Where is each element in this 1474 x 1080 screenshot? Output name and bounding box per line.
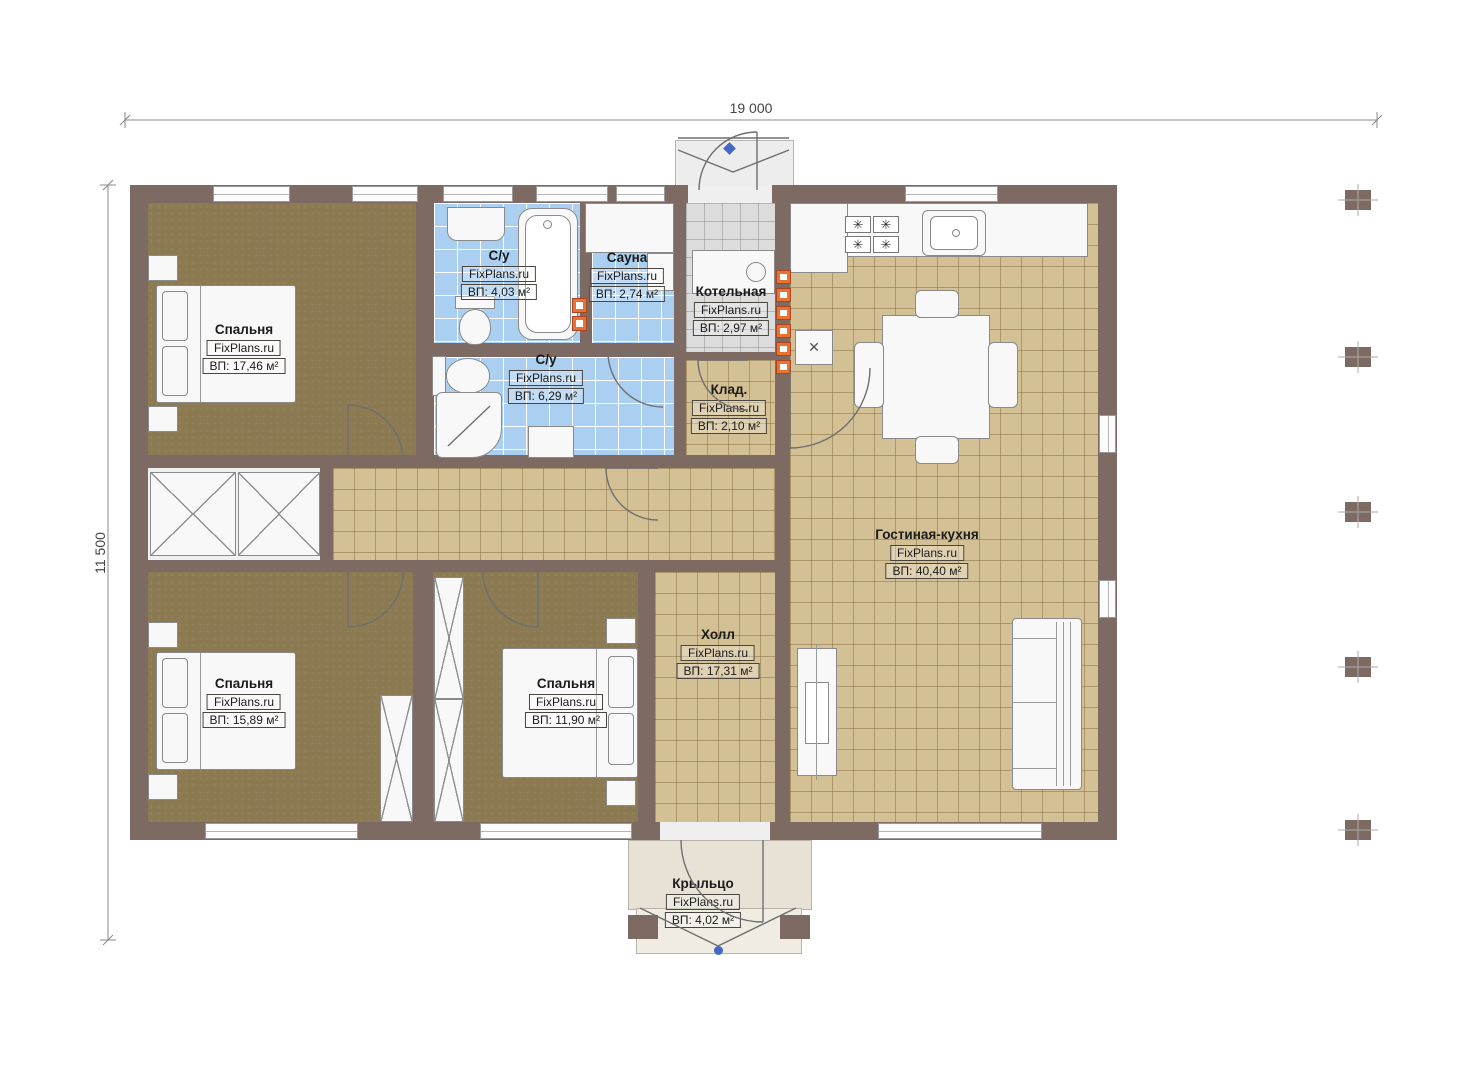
sofa-back-line	[1063, 622, 1064, 786]
appliance-icon: ✕	[795, 330, 833, 365]
nightstand-icon	[148, 774, 178, 800]
room-name: Спальня	[215, 322, 273, 337]
room-area: ВП: 4,03 м²	[461, 284, 537, 300]
nightstand-icon	[148, 406, 178, 432]
shower-icon	[436, 392, 502, 458]
closet-strip-icon	[434, 699, 464, 822]
room-area: ВП: 40,40 м²	[886, 563, 969, 579]
stove-icon: ✳ ✳ ✳ ✳	[845, 216, 901, 254]
sauna-heater-icon	[572, 298, 587, 313]
nightstand-icon	[148, 622, 178, 648]
wall	[665, 343, 674, 357]
porch-pillar	[780, 915, 810, 939]
burner-icon: ✳	[845, 236, 871, 253]
room-name: С/у	[535, 352, 556, 367]
entry-door-opening	[688, 185, 772, 203]
drain-icon	[543, 220, 552, 229]
room-label-porch: Крыльцо FixPlans.ru ВП: 4,02 м²	[665, 876, 741, 928]
window	[1099, 580, 1116, 618]
blanket-line	[200, 653, 201, 769]
room-brand: FixPlans.ru	[509, 370, 583, 386]
sauna-heater-icon	[572, 316, 587, 331]
room-label-storage: Клад. FixPlans.ru ВП: 2,10 м²	[691, 382, 767, 434]
room-name: С/у	[488, 248, 509, 263]
toilet-tank-icon	[432, 356, 446, 396]
chair-icon	[988, 342, 1018, 408]
faucet-icon	[952, 229, 960, 237]
dimension-left-label: 11 500	[92, 513, 108, 593]
room-area: ВП: 2,74 м²	[589, 286, 665, 302]
floor-corridor	[333, 468, 775, 560]
wall	[775, 447, 790, 822]
collector-icon	[776, 306, 791, 320]
pillow-icon	[162, 291, 188, 341]
toilet-icon	[446, 358, 490, 394]
room-brand: FixPlans.ru	[666, 894, 740, 910]
room-name: Спальня	[215, 676, 273, 691]
pillow-icon	[608, 713, 634, 765]
room-area: ВП: 2,97 м²	[693, 320, 769, 336]
room-name: Гостиная-кухня	[875, 527, 978, 542]
sink-icon	[447, 207, 505, 241]
nightstand-icon	[148, 255, 178, 281]
room-area: ВП: 2,10 м²	[691, 418, 767, 434]
boiler-icon	[746, 262, 766, 282]
window	[536, 186, 608, 202]
room-name: Крыльцо	[672, 876, 733, 891]
room-brand: FixPlans.ru	[694, 302, 768, 318]
wall	[538, 560, 790, 572]
terrace-post	[1345, 820, 1371, 840]
porch-marker	[714, 946, 723, 955]
room-brand: FixPlans.ru	[529, 694, 603, 710]
window	[205, 823, 358, 839]
room-brand: FixPlans.ru	[207, 340, 281, 356]
wall	[405, 560, 483, 572]
room-name: Котельная	[696, 284, 767, 299]
room-area: ВП: 4,02 м²	[665, 912, 741, 928]
collector-icon	[776, 288, 791, 302]
room-label-living-kitchen: Гостиная-кухня FixPlans.ru ВП: 40,40 м²	[875, 527, 978, 579]
chair-icon	[915, 290, 959, 318]
window	[213, 186, 290, 202]
wall	[658, 455, 775, 468]
wall	[405, 455, 606, 468]
dining-table-icon	[882, 315, 990, 439]
room-brand: FixPlans.ru	[207, 694, 281, 710]
wall	[413, 572, 433, 822]
nightstand-icon	[606, 618, 636, 644]
wardrobe-icon	[150, 472, 236, 556]
wall	[320, 468, 333, 560]
wall	[592, 343, 607, 357]
chair-icon	[915, 436, 959, 464]
window	[443, 186, 513, 202]
sauna-bench-icon	[585, 203, 674, 253]
wall	[674, 203, 686, 465]
room-area: ВП: 17,46 м²	[203, 358, 286, 374]
room-label-bathroom-top: С/у FixPlans.ru ВП: 4,03 м²	[461, 248, 537, 300]
window	[616, 186, 665, 202]
closet-strip-icon	[434, 577, 464, 699]
window	[905, 186, 998, 202]
burner-icon: ✳	[845, 216, 871, 233]
sink-icon	[528, 426, 574, 458]
room-label-sauna: Сауна FixPlans.ru ВП: 2,74 м²	[589, 250, 665, 302]
wall	[148, 560, 348, 572]
burner-icon: ✳	[873, 236, 899, 253]
wall	[748, 352, 775, 360]
dimension-top-label: 19 000	[690, 100, 812, 116]
toilet-icon	[459, 309, 491, 345]
wall	[686, 352, 692, 360]
kitchen-counter-icon	[790, 203, 848, 273]
room-area: ВП: 17,31 м²	[677, 663, 760, 679]
room-label-boiler-room: Котельная FixPlans.ru ВП: 2,97 м²	[693, 284, 769, 336]
room-brand: FixPlans.ru	[462, 266, 536, 282]
wardrobe-icon	[238, 472, 320, 556]
room-area: ВП: 6,29 м²	[508, 388, 584, 404]
room-label-bedroom-top-left: Спальня FixPlans.ru ВП: 17,46 м²	[203, 322, 286, 374]
room-name: Холл	[701, 627, 735, 642]
tv-icon	[805, 682, 829, 744]
terrace-post	[1345, 347, 1371, 367]
wall	[775, 203, 790, 365]
sofa-back-line	[1056, 622, 1057, 786]
blanket-line	[200, 286, 201, 402]
room-label-bedroom-bottom-left: Спальня FixPlans.ru ВП: 15,89 м²	[203, 676, 286, 728]
room-name: Сауна	[607, 250, 648, 265]
room-label-bedroom-bottom-mid: Спальня FixPlans.ru ВП: 11,90 м²	[525, 676, 607, 728]
sofa-back-line	[1070, 622, 1071, 786]
room-label-bathroom-main: С/у FixPlans.ru ВП: 6,29 м²	[508, 352, 584, 404]
wall	[416, 203, 434, 455]
room-brand: FixPlans.ru	[681, 645, 755, 661]
room-brand: FixPlans.ru	[692, 400, 766, 416]
burner-icon: ✳	[873, 216, 899, 233]
porch-pillar	[628, 915, 658, 939]
room-name: Спальня	[537, 676, 595, 691]
sofa-icon	[1012, 618, 1082, 790]
collector-icon	[776, 360, 791, 374]
collector-icon	[776, 324, 791, 338]
pillow-icon	[162, 713, 188, 763]
room-area: ВП: 11,90 м²	[525, 712, 607, 728]
tv-line	[816, 644, 817, 780]
sofa-seat-line	[1013, 702, 1057, 703]
wall	[332, 455, 348, 468]
terrace-post	[1345, 657, 1371, 677]
room-area: ВП: 15,89 м²	[203, 712, 286, 728]
porch-door-opening	[660, 822, 770, 840]
collector-icon	[776, 270, 791, 284]
window	[878, 823, 1042, 839]
floor-hall	[655, 572, 775, 822]
collector-icon	[776, 342, 791, 356]
room-brand: FixPlans.ru	[590, 268, 664, 284]
sofa-arm-line	[1013, 638, 1057, 639]
room-label-hall: Холл FixPlans.ru ВП: 17,31 м²	[677, 627, 760, 679]
terrace-post	[1345, 190, 1371, 210]
chair-icon	[854, 342, 884, 408]
pillow-icon	[162, 346, 188, 396]
window	[480, 823, 632, 839]
closet-strip-icon	[380, 695, 413, 822]
room-brand: FixPlans.ru	[890, 545, 964, 561]
pillow-icon	[162, 658, 188, 708]
floor-plan-canvas: 19 000 11 500	[0, 0, 1474, 1080]
pillow-icon	[608, 656, 634, 708]
terrace-post	[1345, 502, 1371, 522]
wall	[638, 572, 655, 822]
sofa-arm-line	[1013, 768, 1057, 769]
window	[1099, 415, 1116, 453]
window	[352, 186, 418, 202]
room-name: Клад.	[711, 382, 748, 397]
nightstand-icon	[606, 780, 636, 806]
